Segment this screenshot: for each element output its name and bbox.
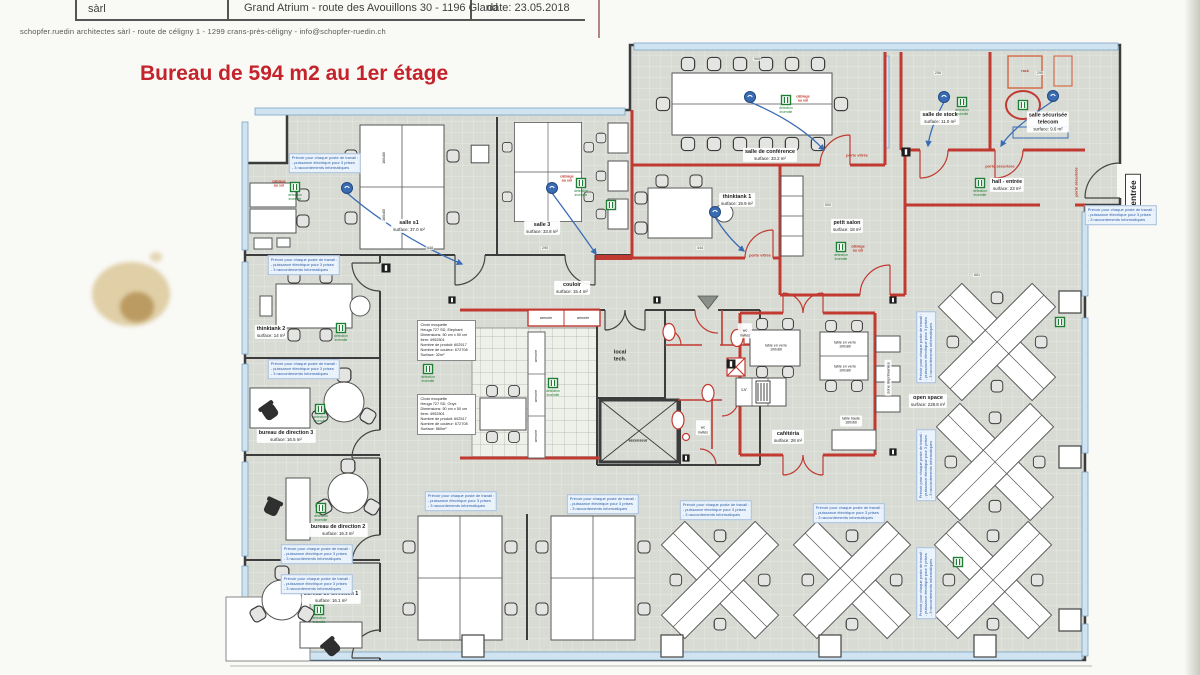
door-label-porte-vitree-2: porte vitrée xyxy=(749,254,771,259)
petit-salon-sofa xyxy=(781,176,803,256)
room-name: salle sécurisée telecom xyxy=(1029,113,1067,127)
dimension-value: 960 xyxy=(753,57,761,61)
scan-stain-dot xyxy=(150,252,162,262)
room-name: thinktank 2 xyxy=(257,326,285,333)
red-wall-segment xyxy=(595,255,632,260)
room-label-stock: salle de stock surface: 11.0 m² xyxy=(920,111,959,125)
workstation-note-openspace-3: Prévoir pour chaque poste de travail : -… xyxy=(680,500,752,520)
room-label-salle3: salle 3 surface: 33.8 m² xyxy=(524,221,560,235)
detector-caption-4: détection incendie xyxy=(955,108,969,116)
detector-caption-12: détection incendie xyxy=(421,375,435,383)
architect-address: schopfer.ruedin architectes sàrl - route… xyxy=(20,27,386,36)
dimension-value: 290 xyxy=(541,246,549,250)
room-surface: surface: 19.9 m² xyxy=(721,201,753,207)
room-name: cafétéria xyxy=(774,431,802,438)
room-name: hall - entrée xyxy=(992,179,1022,186)
room-surface: surface: 16.5 m² xyxy=(259,437,314,443)
room-label-salle1: salle s1 surface: 37.0 m² xyxy=(391,219,427,233)
dimension-value: 500 xyxy=(824,203,832,207)
cabling-caption-1: câblage au sol xyxy=(272,180,285,189)
floor-plan-drawing xyxy=(0,0,1200,675)
armoire-label-1: armoire xyxy=(538,315,554,321)
entrance-gap xyxy=(1117,164,1123,198)
company-abbrev: sàrl xyxy=(88,3,106,15)
armoire-label-3: armoire xyxy=(533,348,539,364)
room-label-wc-1: wc invités xyxy=(738,323,752,338)
room-label-cafeteria: cafétéria surface: 28 m² xyxy=(772,430,804,444)
room-surface: surface: 33.8 m² xyxy=(526,229,558,235)
detector-caption-1: détection incendie xyxy=(288,193,302,201)
room-name: salle de conférence xyxy=(745,149,795,156)
door-label-porte-securisee-vertical: porte sécurisée xyxy=(1075,167,1080,197)
room-name: ascenseur xyxy=(629,439,648,444)
room-surface: surface: 16.1 m² xyxy=(304,598,359,604)
armoire-label-4: armoire xyxy=(533,388,539,404)
workstation-note-openspace-4: Prévoir pour chaque poste de travail : -… xyxy=(813,503,885,523)
page-title: Bureau de 594 m2 au 1er étage xyxy=(140,62,448,86)
armoire-label-2: armoire xyxy=(575,315,591,321)
detector-caption-8: détection incendie xyxy=(313,415,327,423)
door-label-porte-securisee: porte sécurisée xyxy=(985,165,1015,170)
dimension-value: 881 xyxy=(973,273,981,277)
carpet-note-1: Choix moquette Heuga 727 SD, Elephant Di… xyxy=(417,320,476,361)
room-label-wc-2: wc invités xyxy=(696,420,710,435)
workstation-note-openspace-2: Prévoir pour chaque poste de travail : -… xyxy=(567,494,639,514)
room-name: local tech. xyxy=(614,349,627,363)
room-label-thinktank2: thinktank 2 surface: 14 m² xyxy=(255,325,287,339)
room-label-thinktank1: thinktank 1 surface: 19.9 m² xyxy=(719,193,755,207)
detector-caption-11: détection incendie xyxy=(546,389,560,397)
room-surface: surface: 28 m² xyxy=(774,438,802,444)
room-name: bureau de direction 2 xyxy=(311,524,366,531)
dimension-value: 444 xyxy=(696,246,704,250)
workstation-note-direction2: Prévoir pour chaque poste de travail : -… xyxy=(281,544,353,564)
room-label-hall: hall - entrée surface: 23 m² xyxy=(990,178,1024,192)
room-name: salle s1 xyxy=(393,220,425,227)
room-surface: surface: 15.4 m² xyxy=(556,289,588,295)
desk-size-label-1: 160x80 xyxy=(381,150,387,166)
detector-caption-2: détection incendie xyxy=(574,189,588,197)
detector-caption-7: détection incendie xyxy=(334,334,348,342)
room-surface: surface: 14 m² xyxy=(257,333,285,339)
workstation-note-direction3: Prévoir pour chaque poste de travail : -… xyxy=(268,359,340,379)
room-surface: surface: 228.8 m² xyxy=(911,402,945,408)
desk-size-label-2: 160x80 xyxy=(381,207,387,223)
dimension-value: 256 xyxy=(934,71,942,75)
room-name: couloir xyxy=(556,282,588,289)
glass-table-label-2: table en verre 100x80 xyxy=(832,340,858,351)
cabling-caption-2: câblage au sol xyxy=(560,175,573,184)
scan-stain-small xyxy=(120,292,154,322)
room-name: wc invités xyxy=(740,329,750,337)
room-surface: surface: 16.3 m² xyxy=(311,531,366,537)
room-name: salle 3 xyxy=(526,222,558,229)
room-label-petit-salon: petit salon surface: 18 m² xyxy=(831,219,863,233)
cabling-caption-3: câblage au sol xyxy=(796,95,809,104)
room-label-ascenseur: ascenseur xyxy=(627,438,650,445)
room-label-conference: salle de conférence surface: 33.2 m² xyxy=(743,148,797,162)
high-table-label: table haute 160x60 xyxy=(840,416,862,427)
room-label-telecom: salle sécurisée telecom surface: 9.6 m² xyxy=(1027,112,1069,133)
carpet-note-2: Choix moquette Heuga 727 SD, Onyx Dimens… xyxy=(417,394,476,435)
cabling-caption-4: câblage au sol xyxy=(851,245,864,254)
header-vline-1 xyxy=(75,0,77,20)
room-name: salle de stock xyxy=(922,112,957,119)
room-label-direction3: bureau de direction 3 surface: 16.5 m² xyxy=(257,429,316,443)
detector-caption-10: détection incendie xyxy=(312,616,326,624)
room-surface: surface: 11.0 m² xyxy=(922,119,957,125)
room-surface: surface: 9.6 m² xyxy=(1029,126,1067,132)
date-field: date: 23.05.2018 xyxy=(487,2,570,14)
room-name: bureau de direction 3 xyxy=(259,430,314,437)
armoire-label-5: armoire xyxy=(533,428,539,444)
dishwasher-label: LV xyxy=(739,386,748,394)
room-name: petit salon xyxy=(833,220,861,227)
workstation-note-vertical-1: Prévoir pour chaque poste de travail : -… xyxy=(916,311,936,383)
printer-zone-label: zone imprimantes xyxy=(885,360,892,396)
workstation-note-entrance: Prévoir pour chaque poste de travail : -… xyxy=(1085,205,1157,225)
workstation-note-vertical-2: Prévoir pour chaque poste de travail : -… xyxy=(916,429,936,501)
workstation-note-openspace-1: Prévoir pour chaque poste de travail : -… xyxy=(425,491,497,511)
workstation-note-salle1: Prévoir pour chaque poste de travail : -… xyxy=(289,153,361,173)
room-label-local-tech: local tech. xyxy=(612,348,629,364)
scanned-floor-plan-page: sàrl Grand Atrium - route des Avouillons… xyxy=(0,0,1200,675)
room-surface: surface: 18 m² xyxy=(833,227,861,233)
room-name: open space xyxy=(911,395,945,402)
detector-caption-5: détection incendie xyxy=(973,189,987,197)
glass-table-label-1: table en verre 100x80 xyxy=(763,343,789,354)
scan-edge-shadow xyxy=(1184,0,1200,675)
rack-label: rack xyxy=(1021,69,1028,73)
room-name: wc invités xyxy=(698,426,708,434)
workstation-note-vertical-3: Prévoir pour chaque poste de travail : -… xyxy=(916,547,936,619)
room-surface: surface: 23 m² xyxy=(992,186,1022,192)
room-surface: surface: 37.0 m² xyxy=(393,227,425,233)
door-label-porte-vitree-1: porte vitrée xyxy=(846,154,868,159)
header-bottom-rule xyxy=(75,19,585,21)
room-surface: surface: 33.2 m² xyxy=(745,156,795,162)
workstation-note-direction1: Prévoir pour chaque poste de travail : -… xyxy=(281,574,353,594)
scan-crease xyxy=(598,0,600,38)
workstation-note-thinktank2: Prévoir pour chaque poste de travail : -… xyxy=(268,255,340,275)
header-vline-2 xyxy=(227,0,229,20)
room-label-open-space: open space surface: 228.8 m² xyxy=(909,394,947,408)
detector-caption-9: détection incendie xyxy=(314,514,328,522)
room-label-direction2: bureau de direction 2 surface: 16.3 m² xyxy=(309,523,368,537)
room-label-couloir: couloir surface: 15.4 m² xyxy=(554,281,590,295)
dimension-value: 290 xyxy=(1036,71,1044,75)
detector-caption-3: détection incendie xyxy=(779,106,793,114)
room-name: thinktank 1 xyxy=(721,194,753,201)
project-title: Grand Atrium - route des Avouillons 30 -… xyxy=(244,2,498,14)
glass-table-label-3: table en verre 100x80 xyxy=(832,364,858,375)
dimension-value: 448 xyxy=(426,246,434,250)
detector-caption-6: détection incendie xyxy=(834,253,848,261)
